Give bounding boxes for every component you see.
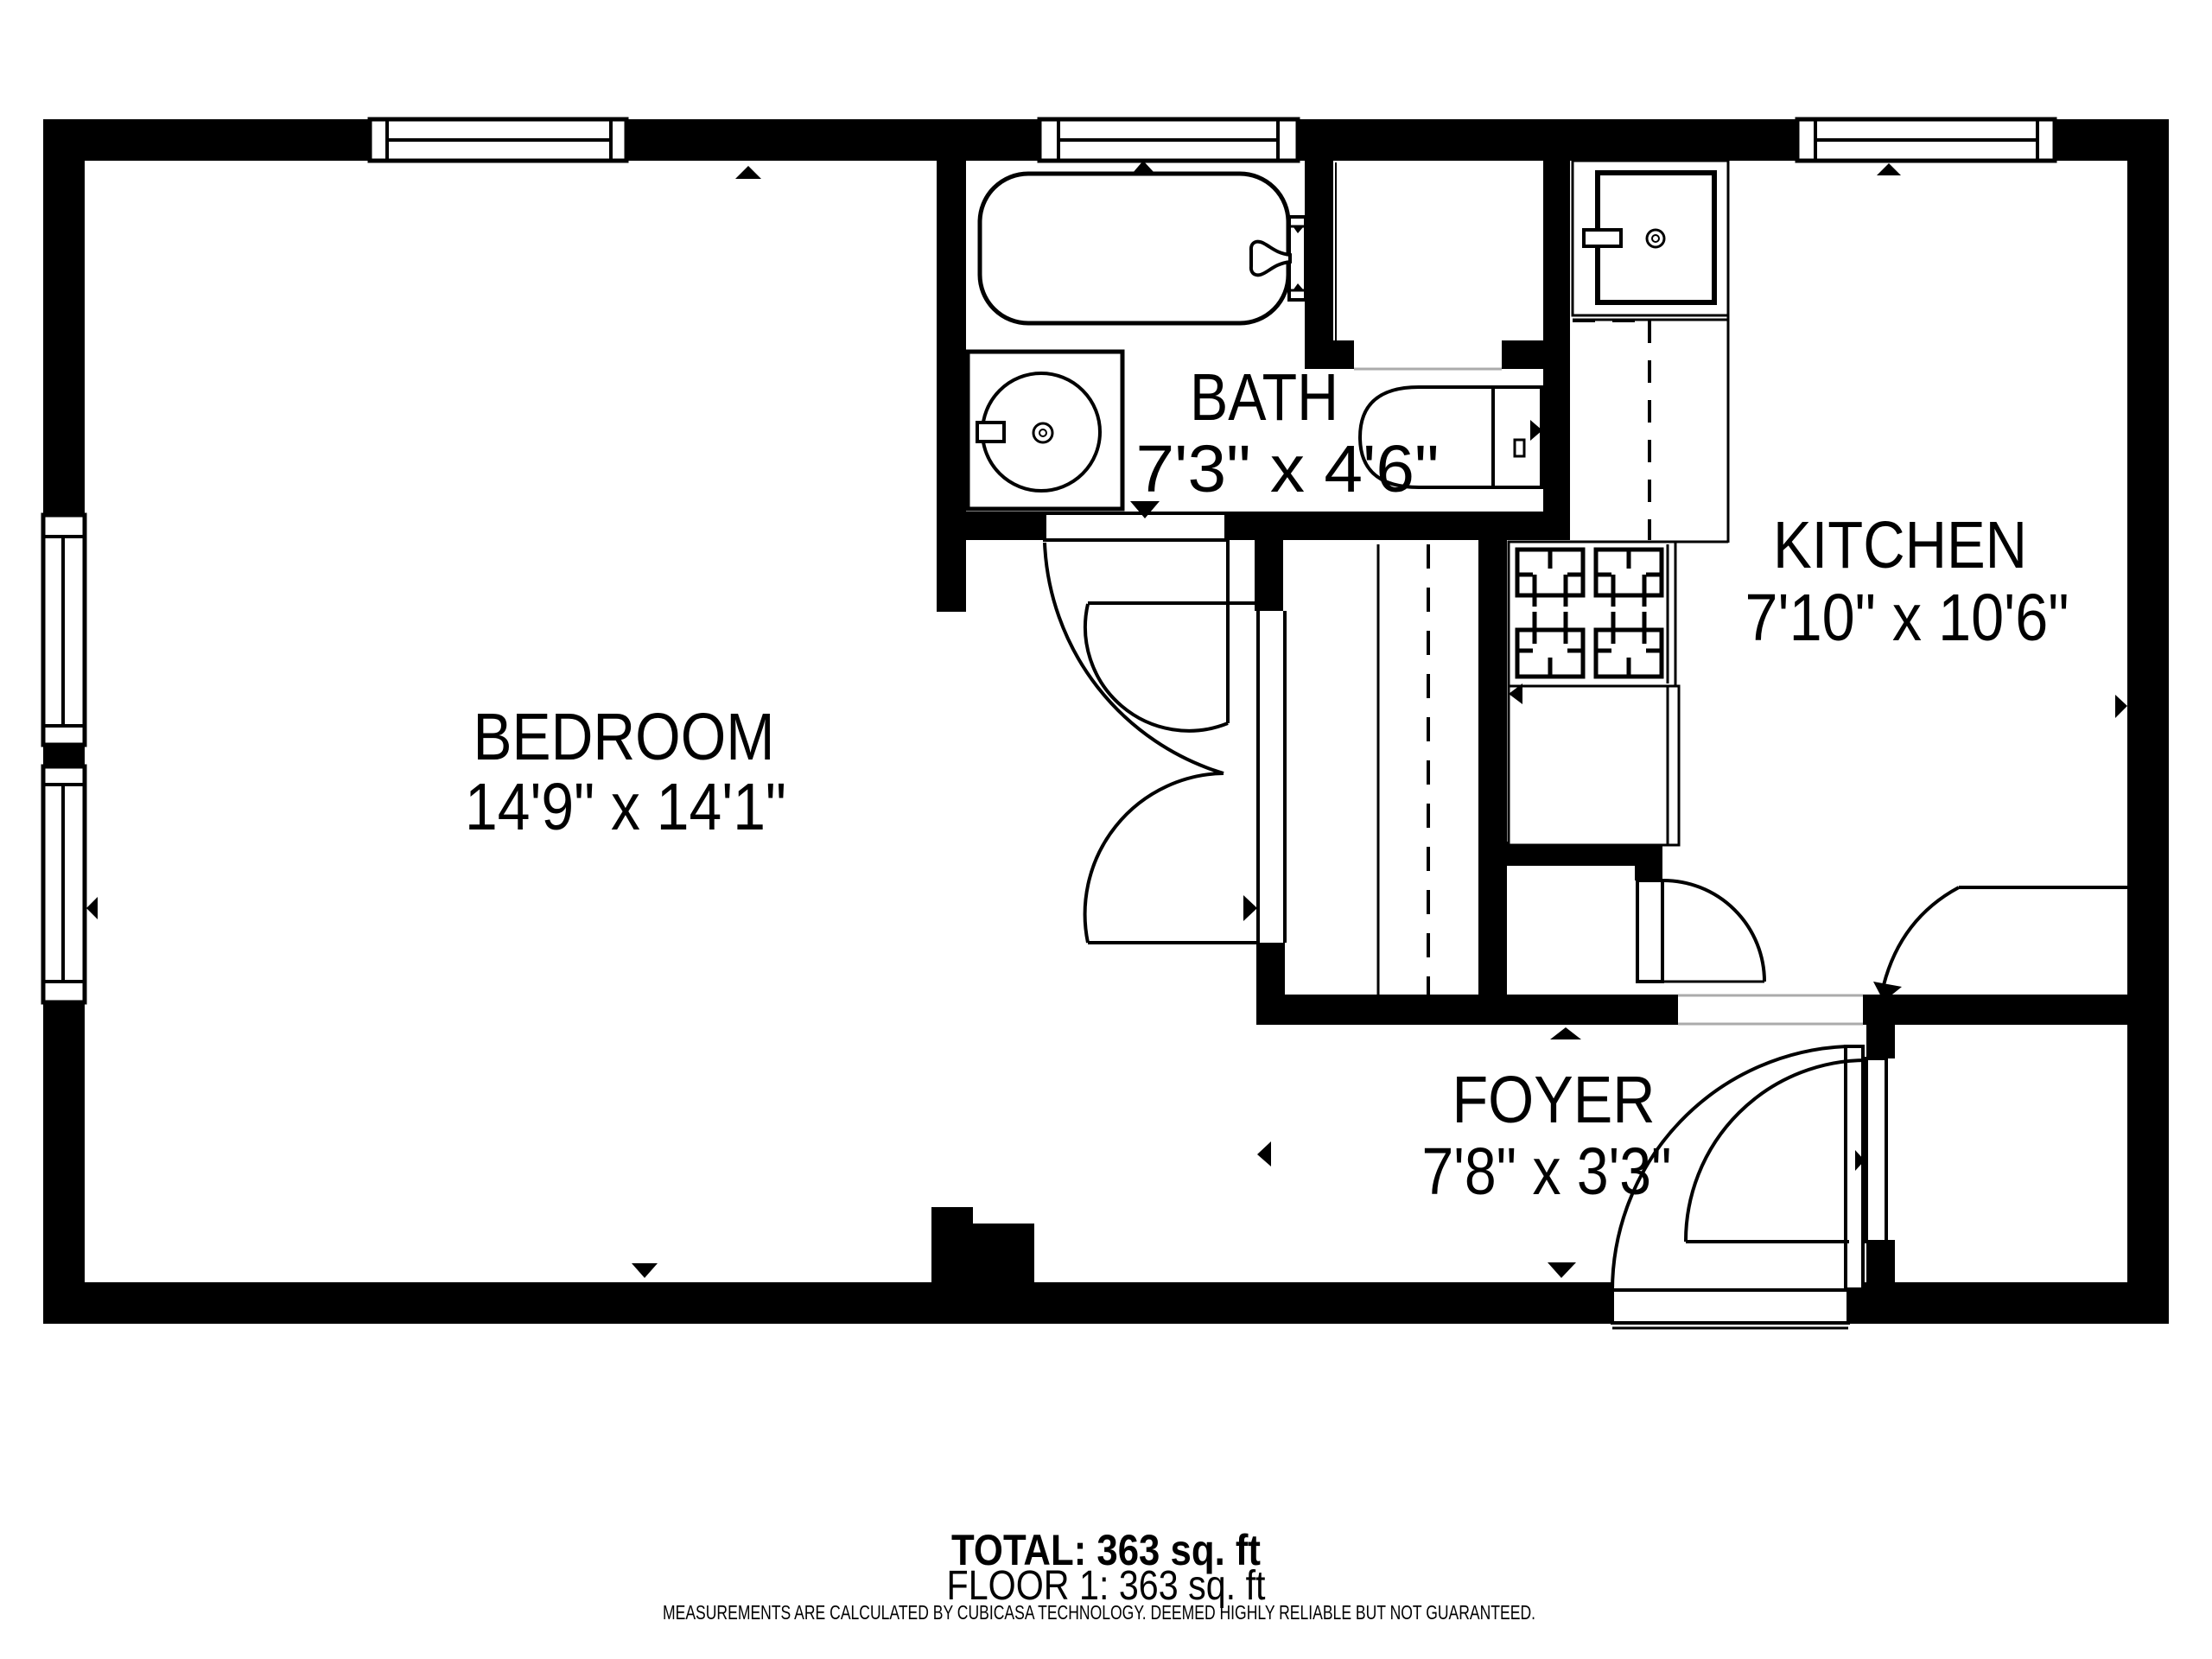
svg-text:14'9" x 14'1": 14'9" x 14'1" xyxy=(465,770,786,844)
svg-text:7'10" x 10'6": 7'10" x 10'6" xyxy=(1745,581,2069,655)
svg-text:7'8" x 3'3": 7'8" x 3'3" xyxy=(1422,1135,1672,1209)
svg-text:BATH: BATH xyxy=(1190,360,1338,435)
svg-text:FOYER: FOYER xyxy=(1452,1063,1656,1137)
svg-text:BEDROOM: BEDROOM xyxy=(474,700,775,774)
svg-text:KITCHEN: KITCHEN xyxy=(1773,508,2027,582)
svg-text:7'3" x 4'6": 7'3" x 4'6" xyxy=(1136,432,1440,506)
svg-text:MEASUREMENTS ARE CALCULATED BY: MEASUREMENTS ARE CALCULATED BY CUBICASA … xyxy=(663,1601,1535,1624)
